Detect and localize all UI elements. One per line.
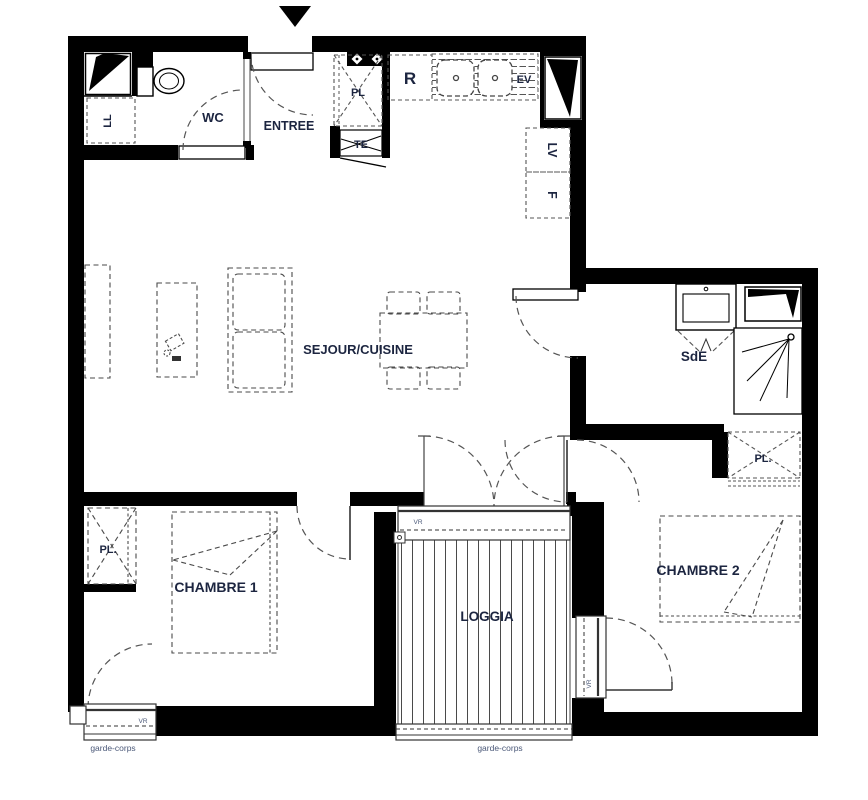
sde-door-arc [516, 296, 578, 358]
vr-label-chambre2: VR [586, 679, 593, 688]
eq-label-pl-chambre1: PL. [99, 544, 116, 556]
loggia [70, 506, 606, 740]
kitchen-window-icon [544, 56, 582, 120]
loggia-door-arc-left [424, 436, 494, 506]
vestibule-door-arc [505, 440, 567, 502]
eq-label-f: F [545, 191, 559, 199]
room-label-chambre1: CHAMBRE 1 [174, 579, 257, 595]
entrance-arrow-icon [279, 6, 311, 27]
room-label-sejour: SEJOUR/CUISINE [303, 342, 413, 357]
garde-corps-label-loggia: garde-corps [477, 743, 522, 753]
eq-label-pl-chambre2: PL. [754, 453, 771, 465]
room-label-wc: WC [202, 110, 224, 125]
vr-label-chambre1: VR [138, 718, 147, 725]
sejour-furniture [85, 265, 467, 392]
loggia-guardrail [396, 724, 572, 740]
room-label-entree: ENTREE [264, 119, 315, 133]
wc-door-leaf [179, 146, 245, 159]
eq-label-r: R [404, 69, 416, 88]
chambre1-window-arc [88, 644, 152, 708]
washbasin-icon [676, 284, 736, 352]
eq-label-pl-entree: PL [351, 87, 365, 99]
vr-label-loggia: VR [413, 519, 422, 526]
eq-label-ll: LL [102, 114, 114, 128]
coffee-table [157, 283, 197, 377]
eq-label-lv: LV [545, 142, 559, 158]
loggia-decking [398, 540, 570, 724]
wc-window-icon [84, 52, 132, 96]
toilet-icon [137, 67, 184, 96]
sde-window-icon [744, 286, 802, 322]
chambre2-window-door-arc [606, 618, 672, 684]
sofa [228, 268, 292, 392]
chambre2-door-arc [577, 440, 639, 502]
eq-label-ev: EV [517, 74, 532, 86]
room-label-chambre2: CHAMBRE 2 [656, 562, 739, 578]
loggia-door-arc-right [494, 436, 564, 506]
dining-table [380, 292, 467, 389]
shower-icon [734, 328, 802, 414]
entrance-door-leaf [251, 53, 313, 70]
garde-corps-label-left: garde-corps [90, 743, 135, 753]
room-label-sde: SdE [681, 349, 707, 364]
floor-plan-svg: WC ENTREE SEJOUR/CUISINE SdE CHAMBRE 1 C… [0, 0, 868, 800]
cabinet [85, 265, 110, 378]
floor-plan: WC ENTREE SEJOUR/CUISINE SdE CHAMBRE 1 C… [0, 0, 868, 800]
eq-label-te: TE [354, 139, 368, 151]
room-label-loggia: LOGGIA [460, 609, 513, 624]
chambre1-door-arc [297, 506, 350, 559]
sde-door-leaf [513, 289, 578, 300]
